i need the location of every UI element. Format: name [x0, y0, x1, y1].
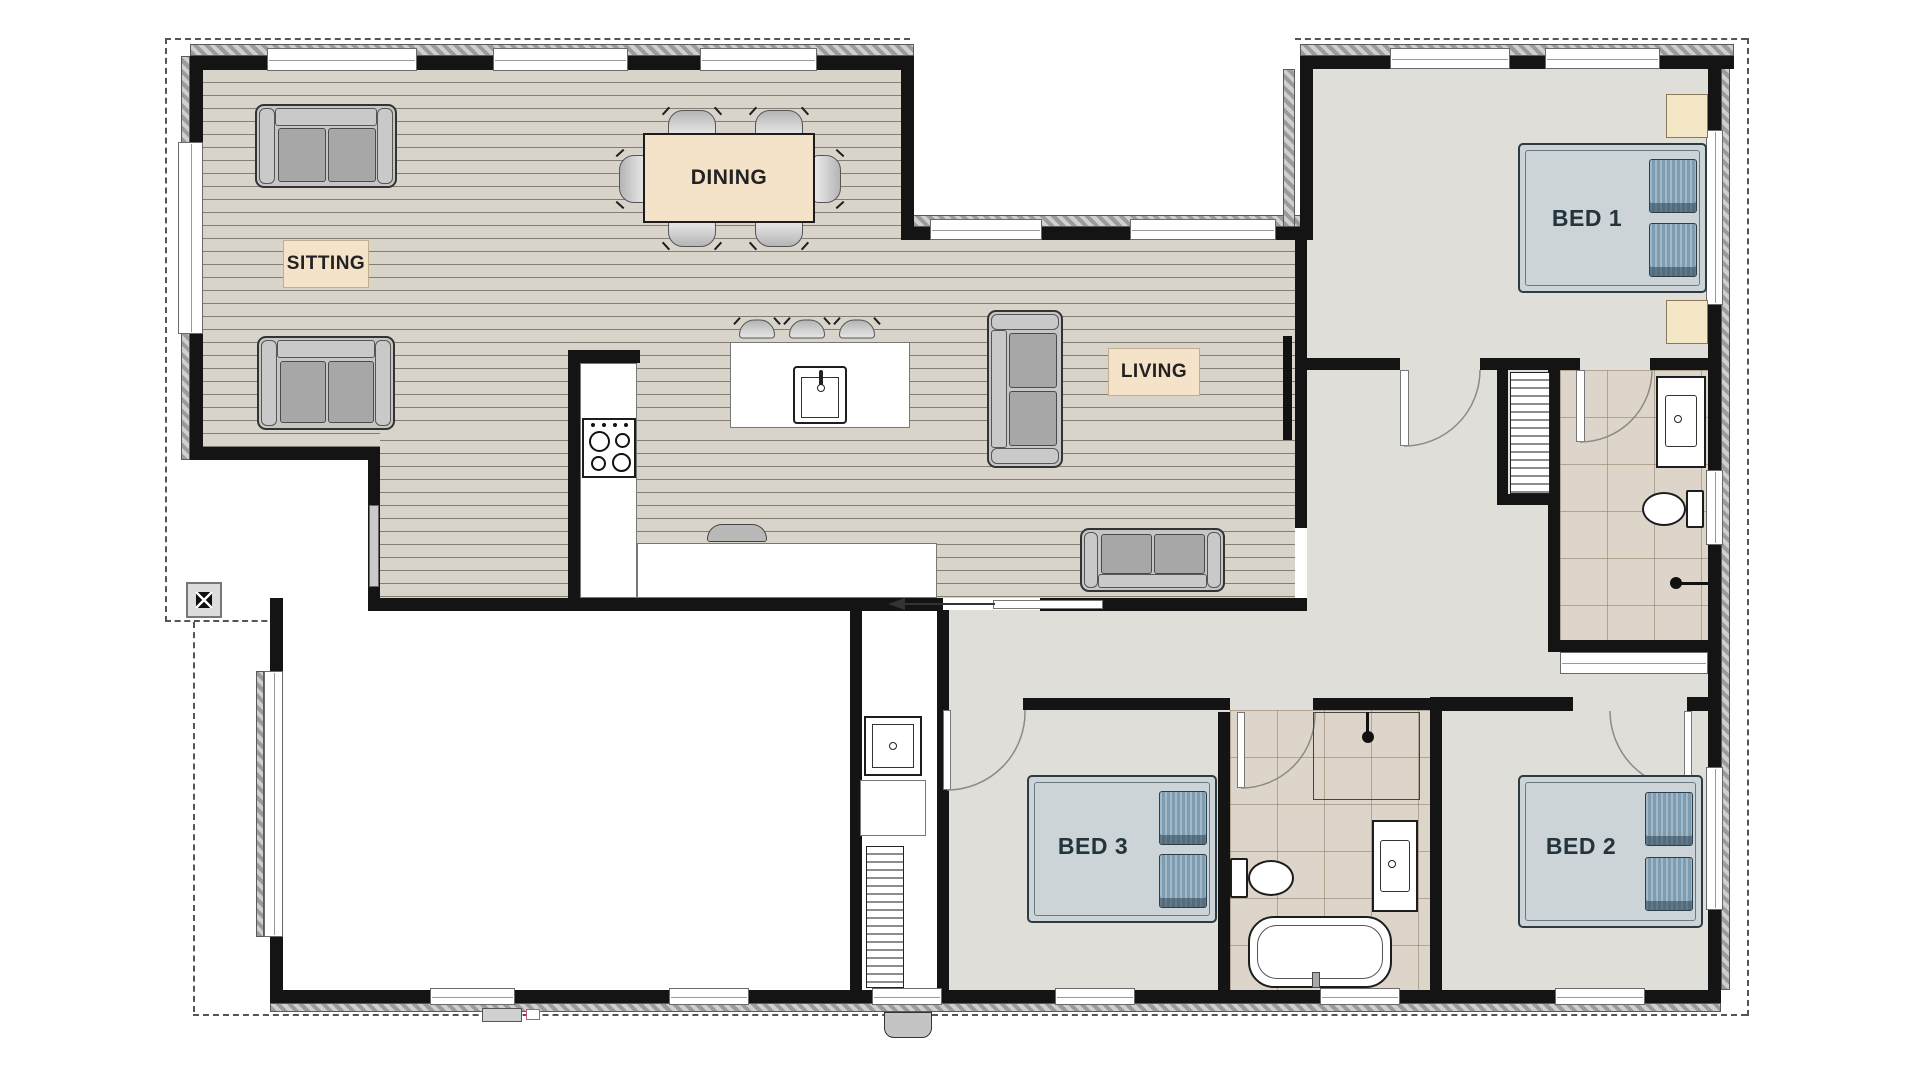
room-label-text: DINING: [691, 166, 768, 190]
window: [1555, 988, 1645, 1005]
bar-stool: [739, 320, 775, 339]
shower-head: [1362, 731, 1374, 743]
window: [267, 48, 417, 71]
window: [1545, 48, 1660, 69]
porch-post: [186, 582, 222, 618]
wall: [1313, 698, 1440, 710]
wall: [1300, 56, 1734, 69]
roofline-garage-left: [193, 622, 195, 1012]
wall: [901, 56, 914, 240]
exterior-pad: [482, 1008, 522, 1022]
dining-chair: [813, 155, 841, 203]
garage-side-door: [369, 505, 379, 587]
linen-cupboard: [1560, 652, 1708, 674]
window: [1390, 48, 1510, 69]
wall: [1295, 232, 1307, 528]
window: [1130, 219, 1276, 240]
bathtub: [1248, 916, 1392, 988]
floor-plan: SITTING DINING: [0, 0, 1920, 1080]
roofline-left: [165, 38, 167, 622]
window: [930, 219, 1042, 240]
ensuite-shower-arm: [1681, 582, 1708, 585]
ensuite-vanity: [1656, 376, 1706, 468]
window: [264, 671, 283, 937]
wall: [568, 363, 580, 598]
room-label-text: BED 1: [1552, 205, 1622, 232]
nightstand: [1666, 300, 1708, 344]
toilet-cistern: [1230, 858, 1248, 898]
basin: [707, 524, 767, 542]
window: [178, 142, 203, 334]
nightstand: [1666, 94, 1708, 138]
room-label-text: BED 3: [1058, 833, 1128, 860]
room-label-sitting: SITTING: [283, 240, 369, 288]
wall: [190, 447, 380, 460]
window: [1320, 988, 1400, 1005]
sliding-door-hall: [993, 600, 1103, 609]
wall: [270, 598, 283, 671]
sofa: [257, 336, 395, 430]
room-label-text: SITTING: [287, 253, 365, 275]
ensuite-toilet-cistern: [1686, 490, 1704, 528]
cladding: [1300, 44, 1734, 56]
window: [1706, 470, 1723, 545]
wall: [1300, 56, 1313, 240]
door-bed3: [943, 710, 951, 790]
window: [493, 48, 628, 71]
roofline-top-right: [1295, 38, 1747, 40]
wall: [1687, 697, 1721, 711]
dining-chair: [755, 219, 803, 247]
sofa: [255, 104, 397, 188]
toilet-bowl: [1248, 860, 1294, 896]
entry-door: [872, 988, 942, 1005]
dining-table: DINING: [643, 133, 815, 223]
wall: [1307, 358, 1400, 370]
wall: [1430, 697, 1442, 990]
roofline-bottom: [193, 1014, 1747, 1016]
wall: [1440, 697, 1573, 711]
bathroom-vanity: [1372, 820, 1418, 912]
cladding: [1283, 69, 1295, 227]
bar-stool: [839, 320, 875, 339]
dining-chair: [668, 219, 716, 247]
wall: [1218, 712, 1230, 990]
window: [1706, 767, 1723, 910]
wall: [1480, 358, 1580, 370]
utility-marker: [526, 1009, 540, 1020]
window: [430, 988, 515, 1005]
room-label-bed3: BED 3: [1038, 826, 1148, 866]
door-ensuite: [1576, 370, 1585, 442]
roofline-right: [1747, 38, 1749, 1016]
room-label-bed2: BED 2: [1526, 826, 1636, 866]
entry-shelves: [866, 846, 904, 988]
window: [700, 48, 817, 71]
sofa: [1080, 528, 1225, 592]
room-label-living: LIVING: [1108, 348, 1200, 396]
wall: [1548, 640, 1708, 652]
room-label-text: BED 2: [1546, 833, 1616, 860]
ensuite-toilet-bowl: [1642, 492, 1686, 526]
island-sink: [793, 366, 847, 424]
laundry-tub: [864, 716, 922, 776]
window: [669, 988, 749, 1005]
wall: [1023, 698, 1230, 710]
wall: [937, 610, 949, 990]
roofline-top-left: [165, 38, 910, 40]
sofa: [987, 310, 1063, 468]
cooktop: [582, 418, 636, 478]
wall: [568, 350, 640, 363]
door-bathroom: [1237, 712, 1245, 788]
closet-shelves: [1510, 372, 1550, 494]
kitchen-counter: [580, 363, 637, 598]
laundry-cupboard: [860, 780, 926, 836]
bench-cabinet: [637, 543, 937, 598]
cladding: [256, 671, 264, 937]
roofline-porch: [165, 620, 277, 622]
window: [1706, 130, 1723, 305]
room-label-bed1: BED 1: [1532, 198, 1642, 238]
door-bed1: [1400, 370, 1409, 446]
window: [1055, 988, 1135, 1005]
tv: [1283, 336, 1292, 440]
room-label-text: LIVING: [1121, 361, 1187, 383]
wall: [1497, 370, 1508, 500]
entry-step: [884, 1012, 932, 1038]
wall: [1650, 358, 1708, 370]
bar-stool: [789, 320, 825, 339]
